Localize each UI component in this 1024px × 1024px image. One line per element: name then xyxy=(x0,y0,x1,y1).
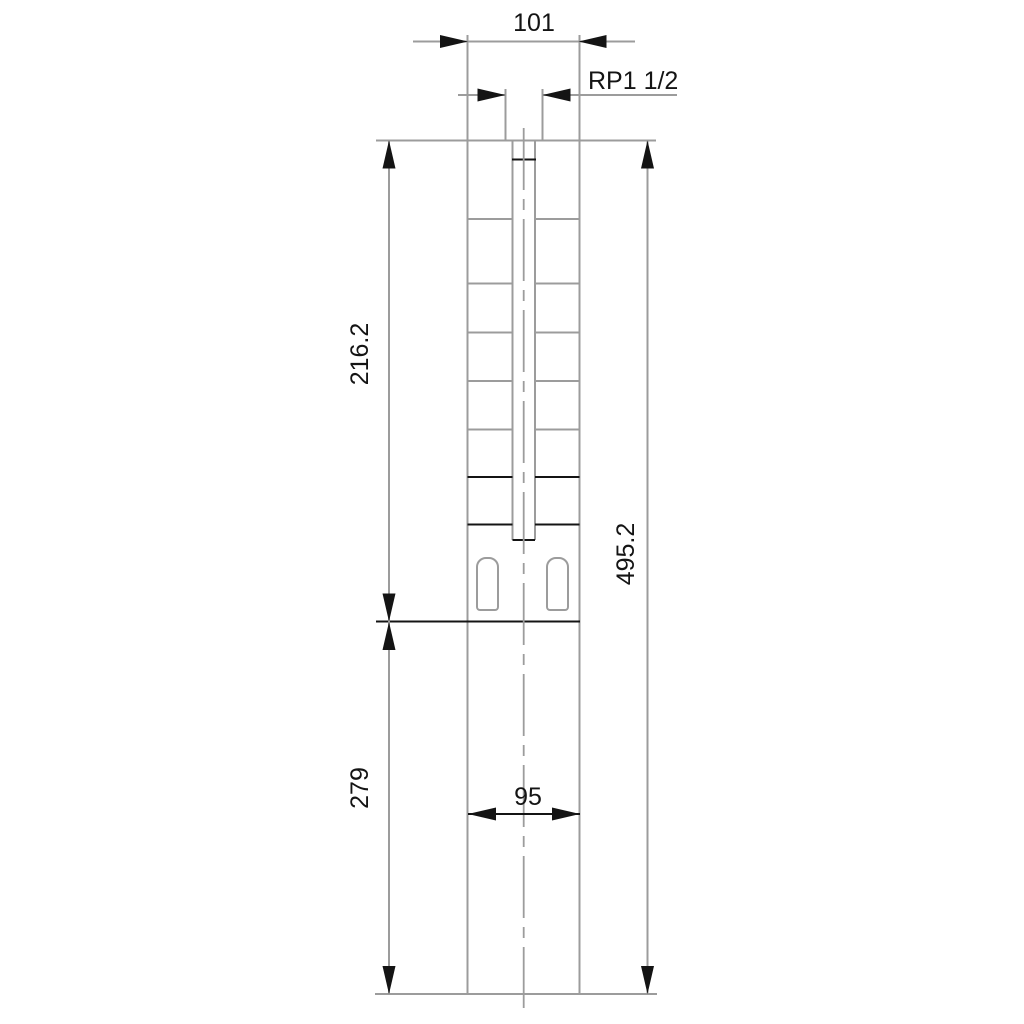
dimension-arrow xyxy=(383,141,396,169)
dimension-arrow xyxy=(543,89,571,102)
pump-dimension-drawing: 101 RP1 1/2 216.2 279 495.2 xyxy=(0,0,1024,1024)
dimension-arrow xyxy=(383,966,396,994)
dimension-arrow xyxy=(641,141,654,169)
dimension-arrow xyxy=(552,808,580,821)
dimension-arrow xyxy=(468,808,496,821)
cable-slot-right xyxy=(547,558,568,610)
dimension-width-bottom: 95 xyxy=(468,783,580,821)
dim-label-motor-section-height: 279 xyxy=(346,767,374,809)
dimension-arrow xyxy=(641,966,654,994)
pump-body xyxy=(375,35,657,994)
dim-label-thread: RP1 1/2 xyxy=(588,67,678,95)
dim-label-width-bottom: 95 xyxy=(514,783,542,811)
dim-label-overall-height: 495.2 xyxy=(612,523,640,586)
dim-label-width-top: 101 xyxy=(513,9,555,37)
cable-slot-left xyxy=(477,558,498,610)
dimension-arrow xyxy=(440,35,468,48)
dim-label-pump-section-height: 216.2 xyxy=(346,323,374,386)
dimension-arrow xyxy=(383,622,396,650)
dimension-thread: RP1 1/2 xyxy=(458,67,678,141)
dimension-arrow xyxy=(478,89,506,102)
dimension-width-top: 101 xyxy=(413,9,635,48)
dimension-arrow xyxy=(579,35,607,48)
dimension-arrow xyxy=(383,594,396,622)
dimension-overall-height: 495.2 xyxy=(612,141,654,995)
drawing-canvas: 101 RP1 1/2 216.2 279 495.2 xyxy=(0,0,1024,1024)
dimension-left-chain: 216.2 279 xyxy=(346,141,396,995)
